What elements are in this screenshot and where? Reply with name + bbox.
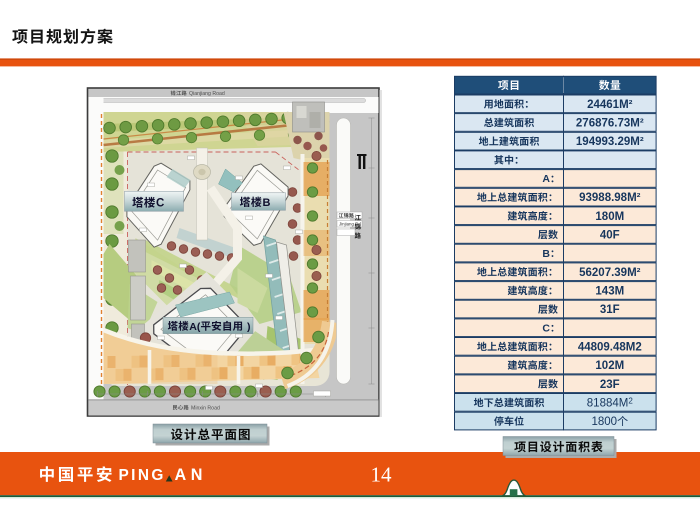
svg-text:C: C xyxy=(156,198,164,210)
svg-text:93988.98M²: 93988.98M² xyxy=(579,192,641,204)
svg-text:24461M²: 24461M² xyxy=(587,99,633,111)
svg-text:40F: 40F xyxy=(600,230,620,242)
svg-text:AN: AN xyxy=(175,466,207,484)
svg-text:PING: PING xyxy=(119,467,166,484)
svg-text:Minxin Road: Minxin Road xyxy=(191,405,220,411)
svg-text:44809.48M2: 44809.48M2 xyxy=(578,342,642,354)
svg-text:): ) xyxy=(247,321,251,333)
svg-text:C: C xyxy=(542,323,550,335)
svg-text:Qianjiang Road: Qianjiang Road xyxy=(189,91,225,97)
svg-text:102M: 102M xyxy=(595,360,624,372)
svg-text:B: B xyxy=(542,248,550,260)
svg-text:194993.29M²: 194993.29M² xyxy=(576,136,644,148)
svg-text:B: B xyxy=(263,197,271,209)
svg-text:A(: A( xyxy=(189,321,201,333)
svg-text:81884M2: 81884M2 xyxy=(587,396,634,409)
svg-text:1800: 1800 xyxy=(592,416,618,428)
svg-text:23F: 23F xyxy=(600,379,620,391)
svg-text:276876.73M²: 276876.73M² xyxy=(576,118,644,130)
svg-text:A: A xyxy=(542,173,550,185)
svg-text:56207.39M²: 56207.39M² xyxy=(579,267,641,279)
svg-text:180M: 180M xyxy=(595,211,624,223)
svg-text:14: 14 xyxy=(371,463,393,487)
svg-text:143M: 143M xyxy=(595,286,624,298)
svg-text:31F: 31F xyxy=(600,304,620,316)
